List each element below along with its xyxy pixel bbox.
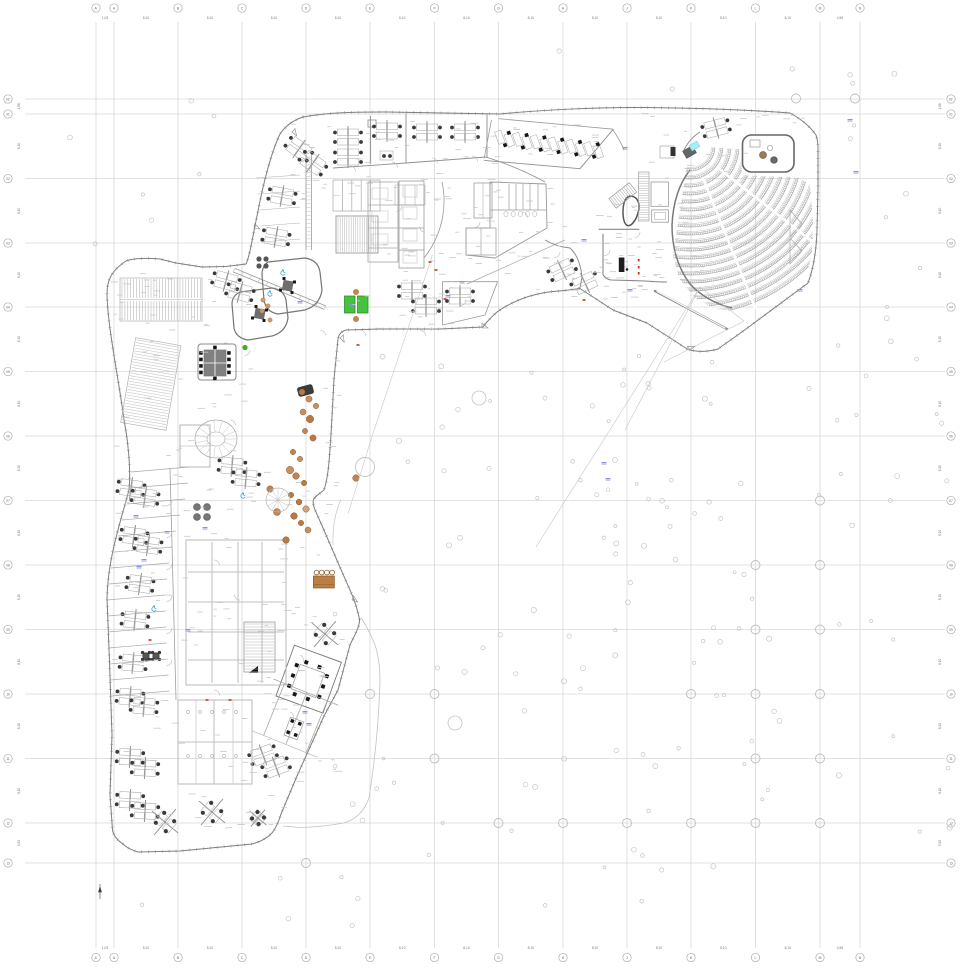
svg-text:8,10: 8,10 <box>335 946 342 950</box>
svg-text:8,10: 8,10 <box>938 529 942 535</box>
svg-text:8,10: 8,10 <box>207 16 214 20</box>
svg-text:01': 01' <box>6 97 11 101</box>
svg-text:8,10: 8,10 <box>271 16 278 20</box>
svg-text:8,10: 8,10 <box>143 16 150 20</box>
svg-text:1,03: 1,03 <box>102 946 109 950</box>
svg-text:8,10: 8,10 <box>938 143 942 149</box>
svg-text:10: 10 <box>6 692 10 696</box>
svg-text:8,10: 8,10 <box>938 594 942 600</box>
svg-text:1,88: 1,88 <box>17 103 21 109</box>
svg-text:G: G <box>497 6 500 10</box>
svg-text:05: 05 <box>949 370 953 374</box>
svg-text:08: 08 <box>6 563 10 567</box>
svg-text:8,10: 8,10 <box>938 723 942 729</box>
svg-text:A': A' <box>95 6 98 10</box>
svg-text:M: M <box>819 6 822 10</box>
svg-text:8,10: 8,10 <box>938 658 942 664</box>
svg-text:8,10: 8,10 <box>785 16 792 20</box>
svg-text:8,10: 8,10 <box>785 946 792 950</box>
svg-text:8,10: 8,10 <box>938 207 942 213</box>
svg-text:1,03: 1,03 <box>102 16 109 20</box>
svg-text:8,10: 8,10 <box>528 16 535 20</box>
svg-text:8,10: 8,10 <box>17 529 21 535</box>
svg-text:8,10: 8,10 <box>271 946 278 950</box>
svg-text:8,10: 8,10 <box>335 16 342 20</box>
svg-text:8,10: 8,10 <box>720 946 727 950</box>
svg-text:8,10: 8,10 <box>17 400 21 406</box>
svg-text:10: 10 <box>949 692 953 696</box>
svg-text:5,50: 5,50 <box>938 840 942 846</box>
svg-text:J: J <box>626 956 628 960</box>
svg-text:G: G <box>497 956 500 960</box>
svg-text:8,10: 8,10 <box>143 946 150 950</box>
svg-text:F: F <box>433 956 435 960</box>
svg-text:8,10: 8,10 <box>592 16 599 20</box>
svg-text:8,10: 8,10 <box>938 400 942 406</box>
svg-text:05: 05 <box>6 370 10 374</box>
svg-text:13: 13 <box>6 861 10 865</box>
svg-text:F: F <box>433 6 435 10</box>
svg-text:8,10: 8,10 <box>528 946 535 950</box>
svg-text:09: 09 <box>949 628 953 632</box>
svg-text:08: 08 <box>949 563 953 567</box>
svg-text:02: 02 <box>6 177 10 181</box>
svg-text:8,10: 8,10 <box>17 336 21 342</box>
svg-text:04: 04 <box>949 305 953 309</box>
svg-text:06: 06 <box>6 434 10 438</box>
svg-text:L: L <box>755 6 757 10</box>
svg-text:03: 03 <box>6 241 10 245</box>
svg-text:8,10: 8,10 <box>399 16 406 20</box>
svg-text:01: 01 <box>949 112 953 116</box>
svg-text:8,10: 8,10 <box>656 946 663 950</box>
svg-text:4,55: 4,55 <box>837 946 844 950</box>
svg-text:8,10: 8,10 <box>17 723 21 729</box>
svg-text:8,10: 8,10 <box>17 787 21 793</box>
svg-text:8,10: 8,10 <box>207 946 214 950</box>
svg-text:01: 01 <box>6 112 10 116</box>
svg-text:11: 11 <box>6 757 10 761</box>
svg-text:03: 03 <box>949 241 953 245</box>
svg-text:4,55: 4,55 <box>837 16 844 20</box>
svg-text:8,10: 8,10 <box>938 272 942 278</box>
svg-text:8,10: 8,10 <box>463 946 470 950</box>
svg-text:1,88: 1,88 <box>938 103 942 109</box>
svg-text:8,10: 8,10 <box>720 16 727 20</box>
svg-text:5,50: 5,50 <box>17 840 21 846</box>
svg-text:02: 02 <box>949 177 953 181</box>
svg-text:09: 09 <box>6 628 10 632</box>
svg-text:06: 06 <box>949 434 953 438</box>
svg-text:07: 07 <box>6 499 10 503</box>
svg-text:8,10: 8,10 <box>17 272 21 278</box>
svg-text:A': A' <box>95 956 98 960</box>
svg-text:8,10: 8,10 <box>17 594 21 600</box>
svg-text:8,10: 8,10 <box>399 946 406 950</box>
svg-text:8,10: 8,10 <box>17 143 21 149</box>
svg-text:8,10: 8,10 <box>592 946 599 950</box>
svg-text:8,10: 8,10 <box>938 336 942 342</box>
svg-text:8,10: 8,10 <box>938 465 942 471</box>
svg-text:01': 01' <box>949 97 954 101</box>
svg-text:J: J <box>626 6 628 10</box>
svg-text:M: M <box>819 956 822 960</box>
svg-text:8,10: 8,10 <box>17 207 21 213</box>
svg-text:8,10: 8,10 <box>463 16 470 20</box>
svg-text:13: 13 <box>949 861 953 865</box>
svg-text:8,10: 8,10 <box>938 787 942 793</box>
svg-text:07: 07 <box>949 499 953 503</box>
svg-text:8,10: 8,10 <box>17 465 21 471</box>
svg-text:11: 11 <box>949 757 953 761</box>
svg-text:12: 12 <box>6 821 10 825</box>
svg-text:8,10: 8,10 <box>656 16 663 20</box>
svg-text:8,10: 8,10 <box>17 658 21 664</box>
svg-text:04: 04 <box>6 305 10 309</box>
svg-text:L: L <box>755 956 757 960</box>
